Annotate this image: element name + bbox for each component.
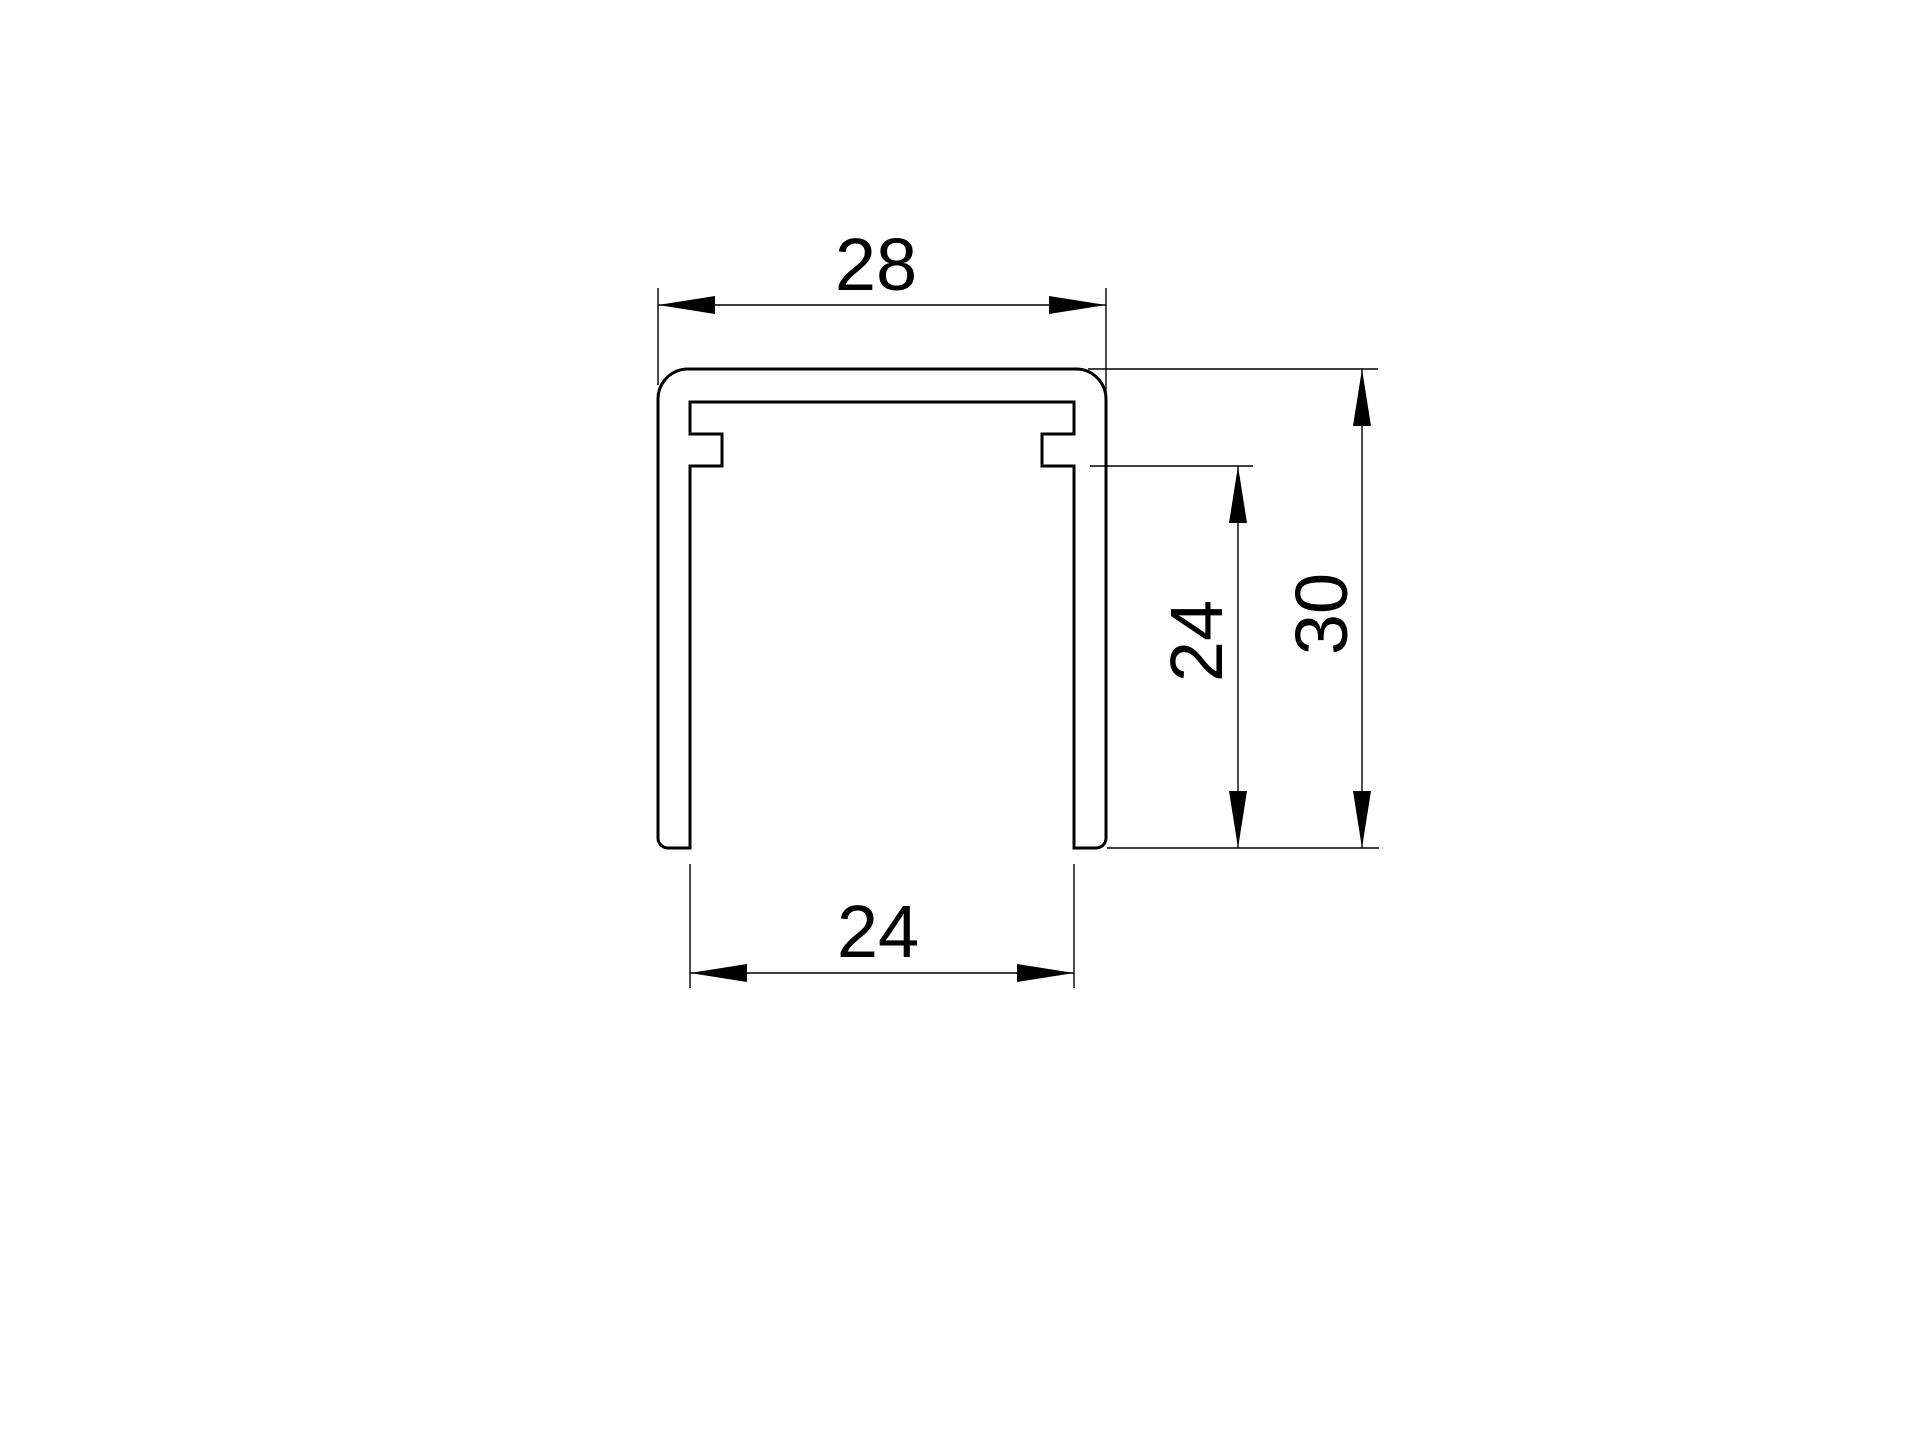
arrow-right-icon xyxy=(1049,296,1106,314)
arrow-left-icon xyxy=(690,964,747,982)
dimension-label-bottom-inner-width: 24 xyxy=(837,890,919,973)
dimension-label-outer-height: 30 xyxy=(1280,573,1363,655)
arrow-right-icon xyxy=(1017,964,1074,982)
drawing-canvas: 28 24 24 30 xyxy=(0,0,1919,1440)
arrow-up-icon xyxy=(1229,466,1247,523)
technical-drawing: 28 24 24 30 xyxy=(0,0,1919,1440)
dimension-inner-height: 24 xyxy=(1090,466,1253,848)
profile-outline-group xyxy=(658,369,1106,848)
arrow-down-icon xyxy=(1229,791,1247,848)
profile-outline xyxy=(658,369,1106,848)
arrow-down-icon xyxy=(1353,791,1371,848)
dimension-label-inner-height: 24 xyxy=(1155,600,1238,682)
dimension-label-top-width: 28 xyxy=(835,223,917,306)
arrow-left-icon xyxy=(658,296,715,314)
arrow-up-icon xyxy=(1353,369,1371,426)
dimension-bottom-inner-width: 24 xyxy=(690,864,1074,988)
